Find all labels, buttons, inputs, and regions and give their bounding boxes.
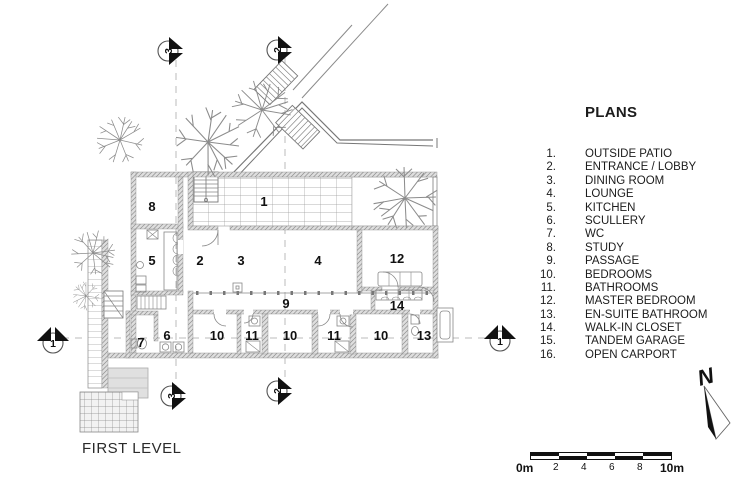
- room-label-dining: 3: [237, 253, 244, 268]
- room-label-bathroom-a: 11: [245, 328, 259, 343]
- entry-stair-upper: [254, 61, 298, 105]
- svg-text:3: 3: [166, 393, 178, 399]
- scale-tick-label: 8: [637, 462, 643, 473]
- room-label-study: 8: [148, 199, 155, 214]
- scale-tick-label: 6: [609, 462, 615, 473]
- legend-item: 1.OUTSIDE PATIO: [528, 148, 707, 161]
- scale-tick-label: 2: [553, 462, 559, 473]
- plan-title: FIRST LEVEL: [82, 440, 181, 457]
- svg-text:3: 3: [163, 48, 175, 54]
- room-label-bedroom-b: 10: [283, 328, 297, 343]
- legend-item: 8.STUDY: [528, 242, 707, 255]
- legend-item: 14.WALK-IN CLOSET: [528, 322, 707, 335]
- legend-item: 7.WC: [528, 228, 707, 241]
- room-label-kitchen: 5: [148, 253, 155, 268]
- tree-icon: [97, 117, 144, 162]
- legend: PLANS 1.OUTSIDE PATIO 2.ENTRANCE / LOBBY…: [528, 104, 707, 362]
- room-label-bathroom-b: 11: [327, 328, 341, 343]
- legend-item: 16.OPEN CARPORT: [528, 349, 707, 362]
- legend-item: 4.LOUNGE: [528, 188, 707, 201]
- room-label-master: 12: [390, 251, 404, 266]
- room-label-scullery: 6: [163, 328, 170, 343]
- room-label-closet: 14: [390, 298, 405, 313]
- scale-bar-labels: 0m 2 4 6 8 10m: [530, 460, 672, 474]
- legend-item: 5.KITCHEN: [528, 202, 707, 215]
- scale-bar: 0m 2 4 6 8 10m: [530, 452, 672, 474]
- legend-heading: PLANS: [585, 104, 707, 121]
- svg-text:1: 1: [50, 338, 56, 350]
- room-label-wc: 7: [137, 335, 144, 350]
- section-marker-bottom-2: 2: [267, 377, 292, 405]
- bathtub-bay: [437, 308, 453, 342]
- room-label-ensuite: 13: [417, 328, 431, 343]
- svg-text:2: 2: [272, 388, 284, 394]
- svg-text:2: 2: [272, 47, 284, 53]
- svg-text:1: 1: [497, 336, 503, 348]
- legend-item: 15.TANDEM GARAGE: [528, 335, 707, 348]
- tree-courtyard: [352, 177, 433, 226]
- legend-item: 13.EN-SUITE BATHROOM: [528, 309, 707, 322]
- legend-item: 3.DINING ROOM: [528, 175, 707, 188]
- section-marker-right-1: 1: [484, 325, 516, 351]
- legend-item: 6.SCULLERY: [528, 215, 707, 228]
- outdoor-steps-icon: [104, 291, 123, 318]
- room-label-lounge: 4: [314, 253, 322, 268]
- legend-item: 9.PASSAGE: [528, 255, 707, 268]
- section-marker-top-3: 3: [158, 37, 183, 65]
- legend-item: 11.BATHROOMS: [528, 282, 707, 295]
- scale-bar-graphic: [530, 452, 672, 460]
- north-arrow: N: [695, 362, 730, 439]
- legend-item: 2.ENTRANCE / LOBBY: [528, 161, 707, 174]
- scale-end-label: 10m: [660, 461, 684, 475]
- room-label-patio: 1: [260, 194, 267, 209]
- section-marker-top-2: 2: [267, 36, 292, 64]
- floor-plan-page: 1 2 3 4 5 6 7 8 9 10 11 10 11 10 12 13 1…: [0, 0, 750, 483]
- room-label-bedroom-c: 10: [374, 328, 388, 343]
- internal-stair-icon: [137, 296, 166, 309]
- legend-item: 10.BEDROOMS: [528, 269, 707, 282]
- room-label-bedroom-a: 10: [210, 328, 224, 343]
- scale-tick-label: 4: [581, 462, 587, 473]
- door-arc: [202, 230, 218, 246]
- scale-start-label: 0m: [516, 461, 533, 475]
- section-marker-bottom-3: 3: [161, 382, 186, 410]
- legend-item: 12.MASTER BEDROOM: [528, 295, 707, 308]
- section-marker-left-1: 1: [37, 327, 69, 353]
- north-label: N: [695, 362, 718, 391]
- room-label-passage: 9: [282, 296, 289, 311]
- room-label-entrance: 2: [196, 253, 203, 268]
- legend-list: 1.OUTSIDE PATIO 2.ENTRANCE / LOBBY 3.DIN…: [528, 148, 707, 362]
- sink-icon: [137, 262, 144, 269]
